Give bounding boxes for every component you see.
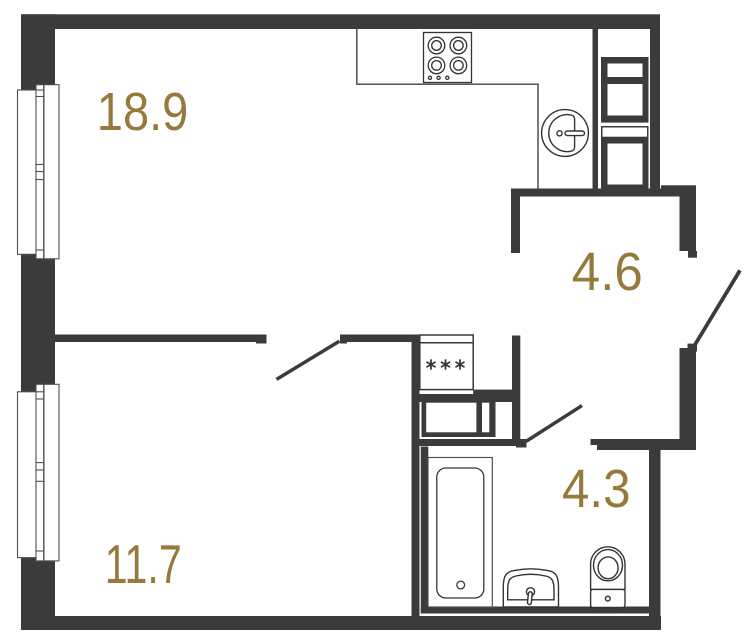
svg-text:18.9: 18.9 <box>97 82 189 142</box>
svg-text:11.7: 11.7 <box>105 533 182 595</box>
svg-text:4.3: 4.3 <box>562 459 631 519</box>
svg-text:4.6: 4.6 <box>572 242 643 302</box>
